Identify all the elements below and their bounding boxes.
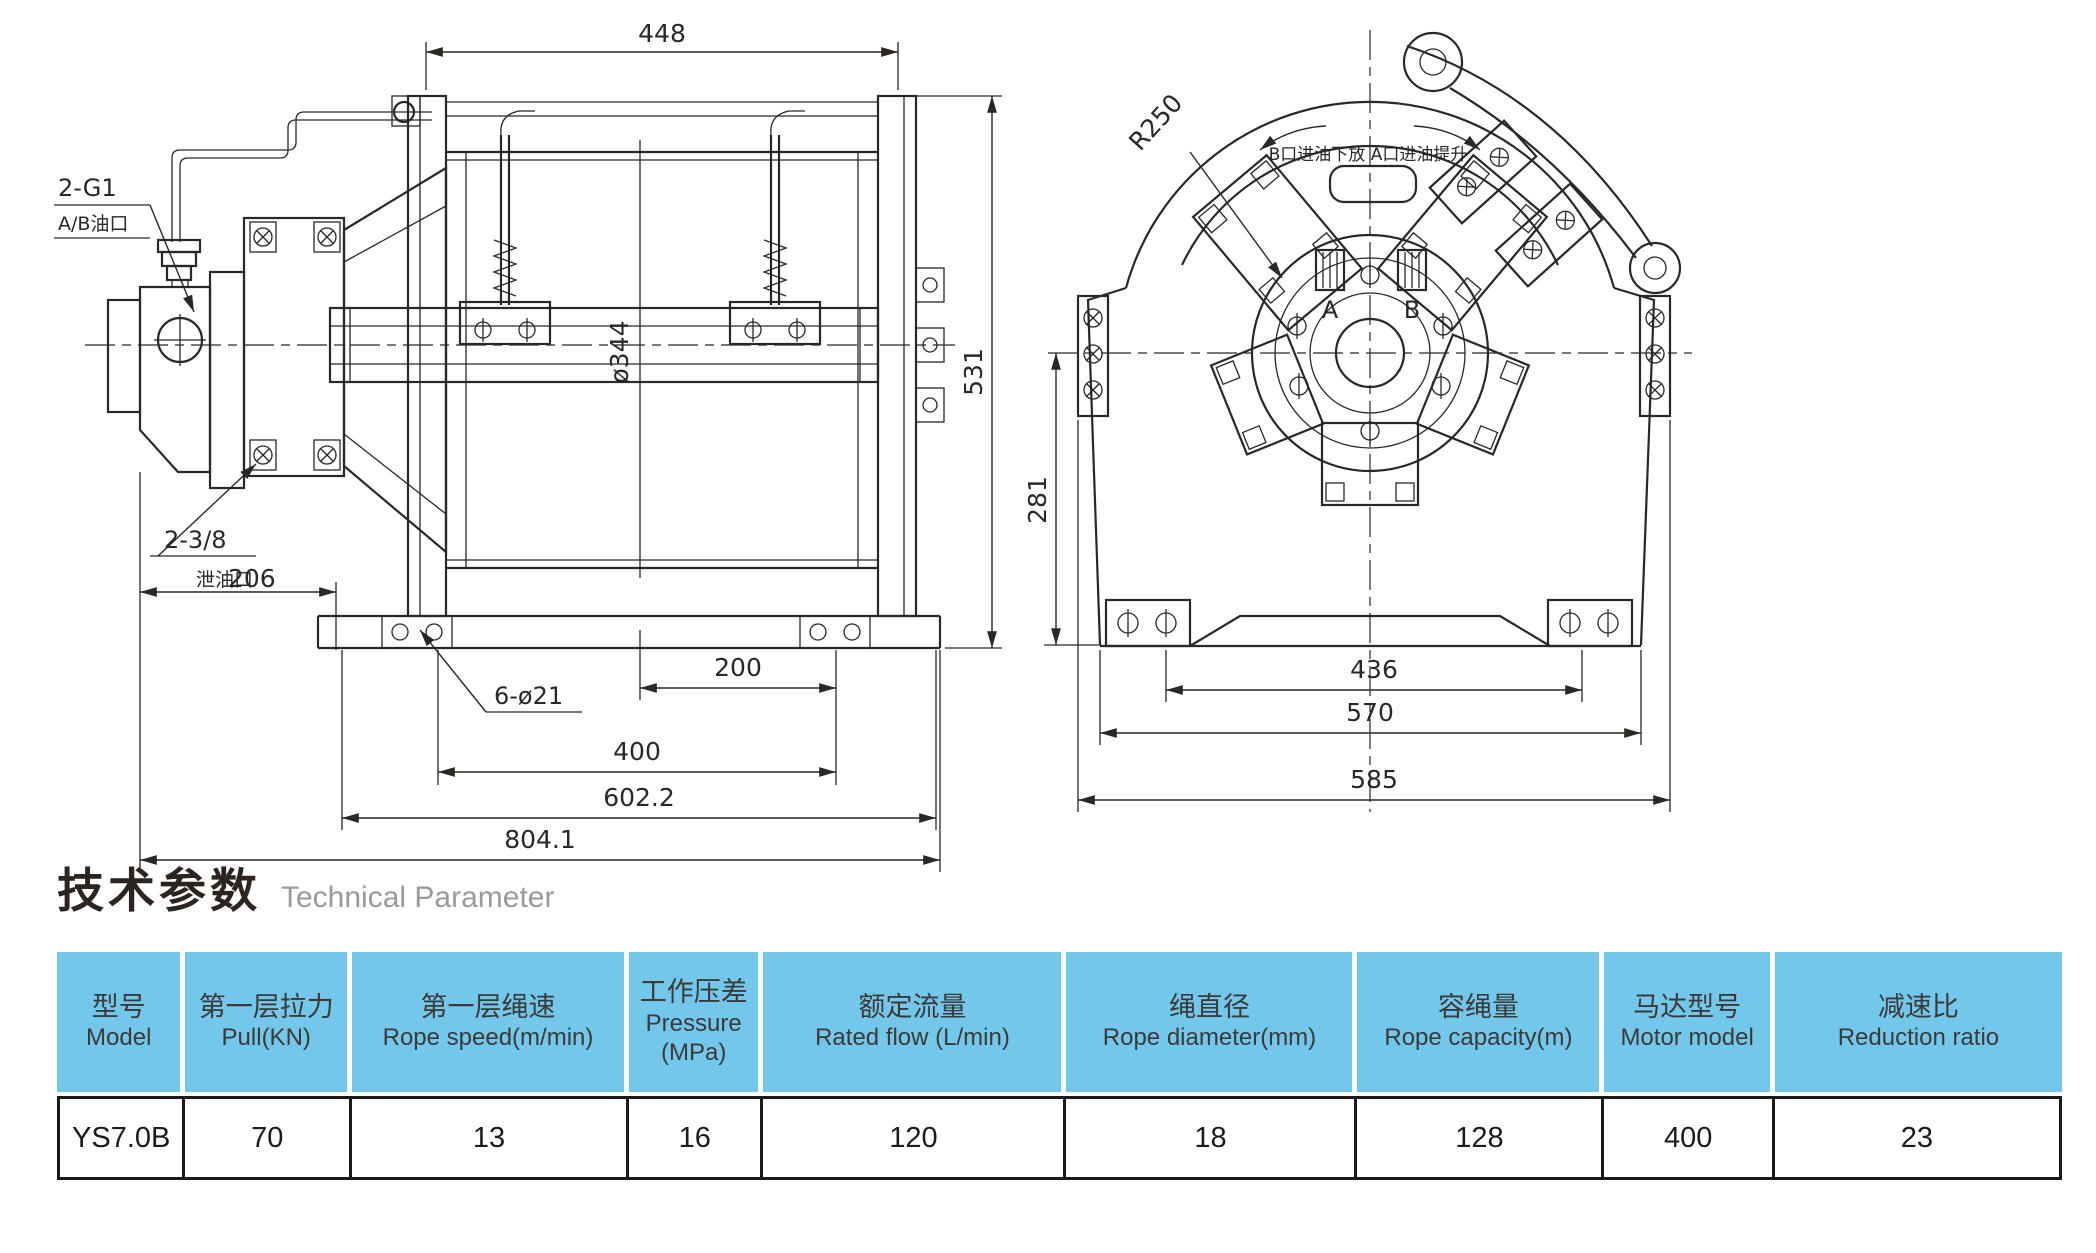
header-reduction-ratio: 减速比 Reduction ratio [1775, 952, 2062, 1092]
rotation-note-text: B口进油下放 A口进油提升 [1269, 145, 1468, 165]
dim-448: 448 [638, 19, 686, 48]
header-rope-capacity: 容绳量 Rope capacity(m) [1357, 952, 1604, 1092]
port-a-label: A [1322, 296, 1339, 324]
port-fittings: A B [1316, 250, 1426, 324]
port-b-label: B [1404, 296, 1420, 324]
cell-motor-model: 400 [1604, 1096, 1775, 1180]
base-frame [318, 616, 940, 648]
drain-label-line1: 2-3/8 [164, 526, 227, 554]
section-title: 技术参数 Technical Parameter [57, 852, 554, 921]
cell-rope-speed: 13 [352, 1096, 629, 1180]
dim-drum-dia: ø344 [605, 320, 634, 383]
radius-label: R250 [1123, 88, 1188, 156]
header-rope-diameter: 绳直径 Rope diameter(mm) [1066, 952, 1357, 1092]
header-model: 型号 Model [57, 952, 185, 1092]
technical-parameter-table: 型号 Model 第一层拉力 Pull(KN) 第一层绳速 Rope speed… [57, 952, 2064, 1180]
section-title-en: Technical Parameter [281, 881, 554, 915]
dim-281: 281 [1023, 476, 1052, 524]
cell-pressure: 16 [629, 1096, 763, 1180]
winch-drawing-svg: 448 531 ø344 200 400 602.2 804.1 泄油口 [0, 0, 2096, 872]
table-header-row: 型号 Model 第一层拉力 Pull(KN) 第一层绳速 Rope speed… [57, 952, 2064, 1092]
cell-reduction-ratio: 23 [1775, 1096, 2062, 1180]
port-label-line2: A/B油口 [58, 213, 128, 235]
technical-drawing: 448 531 ø344 200 400 602.2 804.1 泄油口 [0, 0, 2096, 872]
dim-206: 206 [228, 564, 276, 593]
port-label-line1: 2-G1 [58, 174, 117, 202]
cell-model: YS7.0B [57, 1096, 185, 1180]
end-view: A B B口进油下放 A口进油提升 [1023, 30, 1692, 812]
table-data-row: YS7.0B 70 13 16 120 18 128 400 23 [57, 1096, 2064, 1180]
dim-436: 436 [1350, 655, 1398, 684]
side-plates [1078, 296, 1670, 416]
dim-804: 804.1 [504, 825, 576, 854]
holes-label: 6-ø21 [494, 682, 563, 710]
dim-585: 585 [1350, 765, 1398, 794]
side-view: 448 531 ø344 200 400 602.2 804.1 泄油口 [54, 19, 1002, 872]
header-pressure: 工作压差 Pressure (MPa) [629, 952, 763, 1092]
end-view-dimensions: 281 436 570 585 [1023, 353, 1670, 812]
dim-531: 531 [959, 348, 988, 396]
hydraulic-piping [158, 112, 432, 287]
header-rated-flow: 额定流量 Rated flow (L/min) [763, 952, 1066, 1092]
dim-400: 400 [613, 737, 661, 766]
header-motor-model: 马达型号 Motor model [1604, 952, 1775, 1092]
cell-rope-capacity: 128 [1357, 1096, 1604, 1180]
header-pull: 第一层拉力 Pull(KN) [185, 952, 352, 1092]
dim-200: 200 [714, 653, 762, 682]
cell-pull: 70 [185, 1096, 352, 1180]
header-rope-speed: 第一层绳速 Rope speed(m/min) [352, 952, 629, 1092]
cell-rated-flow: 120 [763, 1096, 1066, 1180]
side-view-dimensions: 448 531 ø344 200 400 602.2 804.1 泄油口 [140, 19, 1002, 872]
dim-602: 602.2 [603, 783, 675, 812]
winch-datasheet-page: { "title": { "zh": "技术参数", "en": "Techni… [0, 0, 2096, 1253]
section-title-zh: 技术参数 [57, 852, 261, 921]
cell-rope-diameter: 18 [1066, 1096, 1357, 1180]
dim-570: 570 [1346, 698, 1394, 727]
